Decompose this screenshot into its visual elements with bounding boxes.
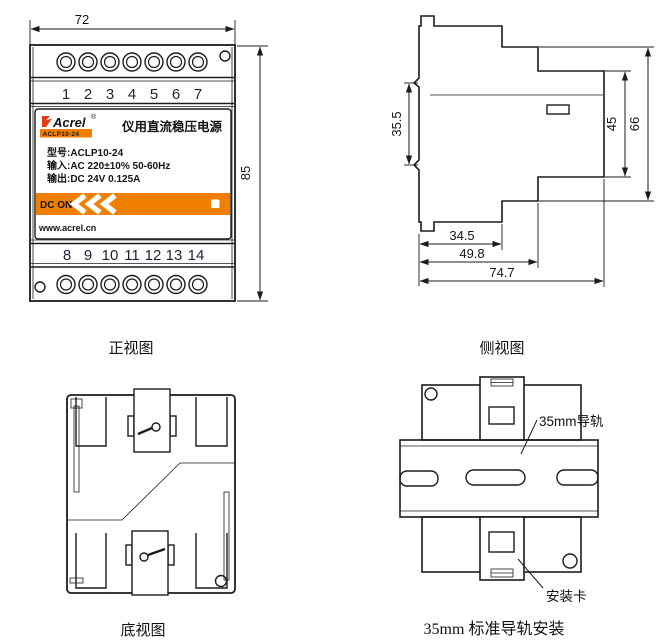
rail-slot [400, 471, 438, 486]
side-dim-total-height: 66 [539, 47, 654, 201]
din-rail [400, 440, 598, 517]
terminal-number: 8 [63, 247, 71, 264]
side-view: 35.5 45 66 34.5 49.8 [389, 16, 654, 357]
side-profile-outline [414, 16, 604, 231]
terminal-screws-top [57, 53, 207, 71]
front-dim-width: 72 [30, 12, 235, 44]
terminal-number: 13 [166, 247, 183, 264]
side-dim-depth1-label: 34.5 [449, 228, 474, 243]
side-dim-depth3: 74.7 [420, 179, 604, 287]
bottom-bottom-clip [126, 531, 174, 595]
front-dim-height: 85 [237, 46, 268, 301]
bottom-caption: 底视图 [120, 622, 165, 639]
terminal-number: 7 [194, 86, 202, 103]
front-caption: 正视图 [108, 340, 153, 357]
side-dim-clip: 35.5 [389, 83, 418, 165]
rail-lower-clip [480, 517, 524, 580]
spec-input: 输入:AC 220±10% 50-60Hz [47, 159, 170, 172]
terminal-number: 6 [172, 86, 180, 103]
front-view: 72 85 [30, 12, 268, 357]
mounting-hole-top-right [220, 51, 230, 61]
side-dim-depth2: 49.8 [420, 203, 538, 268]
rail-slot [557, 470, 598, 485]
registered-mark: ® [91, 113, 97, 121]
rail-lower-hole [563, 554, 577, 568]
side-dim-clip-label: 35.5 [389, 111, 404, 136]
terminal-screws-bottom [57, 276, 207, 294]
bottom-case-seam [67, 463, 235, 520]
terminal-numbers-bottom: 8 9 10 11 12 13 14 [63, 247, 205, 264]
acrel-logo: Acrel ® [42, 113, 97, 130]
technical-drawing-page: 72 85 [0, 0, 668, 644]
dc-indicator-icon [211, 200, 220, 209]
brand-name: Acrel [52, 115, 86, 130]
clip-callout: 安装卡 [518, 559, 587, 604]
rail-upper-hole [425, 388, 437, 400]
side-dim-depth2-label: 49.8 [459, 246, 484, 261]
spec-model: 型号:ACLP10-24 [47, 146, 124, 159]
side-dim-depth3-label: 74.7 [489, 265, 514, 280]
terminal-number: 1 [62, 86, 70, 103]
terminal-number: 12 [145, 247, 162, 264]
terminal-number: 5 [150, 86, 158, 103]
side-slot [547, 105, 569, 114]
side-caption: 侧视图 [479, 340, 524, 357]
terminal-number: 3 [106, 86, 114, 103]
front-label-panel: Acrel ® ACLP10-24 仪用直流稳压电源 型号:ACLP10-24 … [35, 109, 231, 239]
rail-slot [466, 470, 525, 485]
dc-on-label: DC ON [40, 200, 72, 211]
front-device-body: 1 2 3 4 5 6 7 8 9 10 11 12 13 14 [30, 45, 235, 301]
mounting-hole-bottom-left [35, 282, 45, 292]
rail-callout-label: 35mm导轨 [539, 414, 604, 429]
terminal-number: 9 [84, 247, 92, 264]
clip-lever-pivot [152, 423, 160, 431]
terminal-number: 11 [124, 247, 140, 264]
rail-view: 35mm导轨 安装卡 35mm 标准导轨安装 [400, 377, 604, 638]
terminal-number: 10 [102, 247, 119, 264]
bottom-top-clip [128, 389, 176, 452]
clip-callout-label: 安装卡 [546, 589, 587, 604]
rail-callout: 35mm导轨 [521, 414, 604, 454]
terminal-number: 4 [128, 86, 136, 103]
terminal-number: 14 [188, 247, 205, 264]
model-badge-label: ACLP10-24 [43, 131, 80, 138]
rail-caption: 35mm 标准导轨安装 [424, 620, 565, 638]
side-dim-body-height-label: 45 [604, 117, 619, 131]
website-label: www.acrel.cn [38, 223, 96, 233]
side-dim-total-height-label: 66 [627, 117, 642, 131]
terminal-number: 2 [84, 86, 92, 103]
front-dim-height-label: 85 [238, 166, 253, 180]
bottom-corner-hole [216, 576, 227, 587]
bottom-view: 底视图 [67, 389, 235, 639]
spec-output: 输出:DC 24V 0.125A [47, 172, 140, 185]
acrel-logo-icon [42, 116, 52, 127]
clip-lever-pivot [140, 553, 148, 561]
drawing-canvas: 72 85 [0, 0, 668, 644]
front-dim-width-label: 72 [75, 12, 89, 27]
terminal-numbers-top: 1 2 3 4 5 6 7 [62, 86, 202, 103]
dc-on-bar: DC ON [36, 193, 230, 215]
product-title: 仪用直流稳压电源 [121, 119, 223, 134]
rail-upper-clip [480, 377, 524, 440]
